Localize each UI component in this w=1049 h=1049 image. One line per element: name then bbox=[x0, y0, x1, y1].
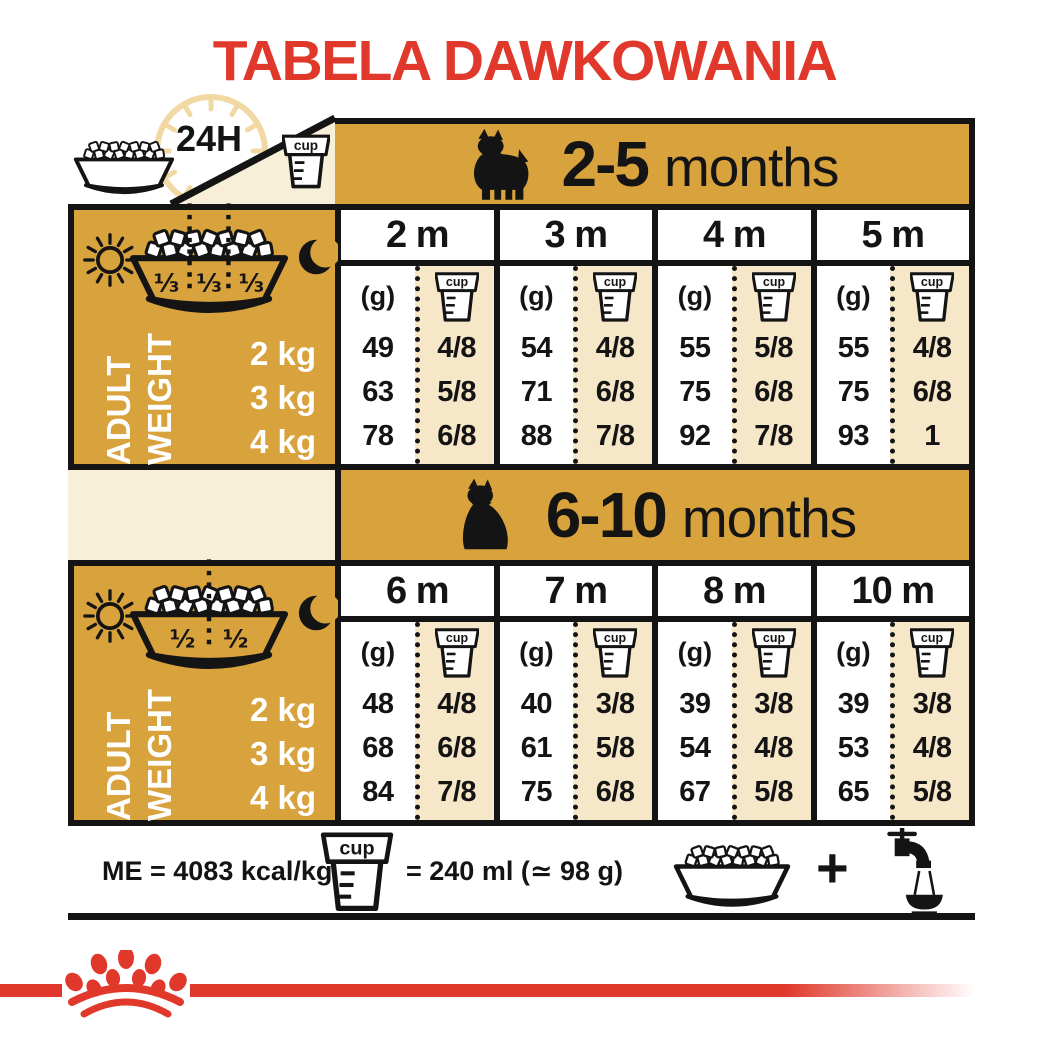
svg-text:cup: cup bbox=[339, 838, 374, 860]
cups-value: 4/8 bbox=[737, 726, 811, 770]
svg-text:cup: cup bbox=[446, 275, 469, 289]
svg-text:cup: cup bbox=[921, 275, 944, 289]
cups-value: 6/8 bbox=[420, 414, 494, 458]
svg-text:cup: cup bbox=[763, 631, 786, 645]
measuring-cup-icon: cup bbox=[752, 270, 796, 323]
cups-value: 7/8 bbox=[578, 414, 652, 458]
cups-value: 3/8 bbox=[737, 682, 811, 726]
cups-value: 6/8 bbox=[578, 370, 652, 414]
cups-value: 6/8 bbox=[578, 770, 652, 814]
plus-sign: + bbox=[816, 828, 849, 908]
grams-value: 40 bbox=[500, 682, 574, 726]
spacer-block bbox=[68, 470, 335, 560]
brand-band-right bbox=[190, 984, 975, 997]
grams-value: 63 bbox=[341, 370, 415, 414]
grams-value: 54 bbox=[500, 326, 574, 370]
cups-value: 1 bbox=[895, 414, 969, 458]
cups-value: 6/8 bbox=[895, 370, 969, 414]
grams-value: 54 bbox=[658, 726, 732, 770]
grams-value: 93 bbox=[817, 414, 891, 458]
month-column-6m: 6 m (g) 48 68 84 cup 4/8 6/8 7/8 bbox=[335, 566, 494, 820]
grams-value: 71 bbox=[500, 370, 574, 414]
month-column-3m: 3 m (g) 54 71 88 cup 4/8 6/8 7/8 bbox=[494, 210, 653, 464]
cups-value: 7/8 bbox=[737, 414, 811, 458]
weight-label: 4 kg bbox=[250, 420, 316, 464]
feeding-table-2-5: ⅓ ⅓ ⅓ ADULTWEIGHT 2 kg 3 kg 4 kg 2 m (g)… bbox=[68, 204, 975, 470]
cup-equivalence-text: = 240 ml (≃ 98 g) bbox=[406, 828, 623, 914]
age-range-unit: months bbox=[664, 135, 838, 199]
month-column-7m: 7 m (g) 40 61 75 cup 3/8 5/8 6/8 bbox=[494, 566, 653, 820]
grams-value: 49 bbox=[341, 326, 415, 370]
left-panel: ⅓ ⅓ ⅓ ADULTWEIGHT 2 kg 3 kg 4 kg bbox=[74, 210, 335, 464]
grams-value: 53 bbox=[817, 726, 891, 770]
age-range-title: 2-5months bbox=[561, 127, 838, 201]
svg-text:cup: cup bbox=[763, 275, 786, 289]
grams-value: 48 bbox=[341, 682, 415, 726]
measuring-cup-icon: cup bbox=[910, 270, 954, 323]
month-column-4m: 4 m (g) 55 75 92 cup 5/8 6/8 7/8 bbox=[652, 210, 811, 464]
cups-value: 4/8 bbox=[578, 326, 652, 370]
svg-text:⅓: ⅓ bbox=[154, 269, 180, 298]
adult-weight-label: ADULTWEIGHT bbox=[98, 295, 182, 465]
svg-text:½: ½ bbox=[170, 625, 196, 654]
month-column-5m: 5 m (g) 55 75 93 cup 4/8 6/8 1 bbox=[811, 210, 970, 464]
month-header: 8 m bbox=[658, 566, 811, 622]
royal-canin-crown-icon bbox=[60, 950, 192, 1022]
grams-unit: (g) bbox=[817, 622, 891, 682]
brand-band-left bbox=[0, 984, 62, 997]
weight-label: 4 kg bbox=[250, 776, 316, 820]
measuring-cup-icon: cup bbox=[910, 626, 954, 679]
grams-unit: (g) bbox=[341, 266, 415, 326]
age-range-unit: months bbox=[682, 486, 856, 550]
grams-unit: (g) bbox=[500, 622, 574, 682]
age-range-title: 6-10months bbox=[546, 478, 856, 552]
left-panel: ½ ½ ADULTWEIGHT 2 kg 3 kg 4 kg bbox=[74, 566, 335, 820]
measuring-cup-icon: cup bbox=[282, 132, 330, 190]
weight-label: 2 kg bbox=[250, 688, 316, 732]
measuring-cup-icon: cup bbox=[593, 626, 637, 679]
weight-label: 3 kg bbox=[250, 732, 316, 776]
cups-value: 5/8 bbox=[578, 726, 652, 770]
grams-value: 88 bbox=[500, 414, 574, 458]
grams-value: 39 bbox=[658, 682, 732, 726]
svg-text:cup: cup bbox=[604, 631, 627, 645]
grams-unit: (g) bbox=[500, 266, 574, 326]
moon-icon bbox=[298, 234, 338, 280]
feeding-table-6-10: ½ ½ ADULTWEIGHT 2 kg 3 kg 4 kg 6 m (g) 4… bbox=[68, 560, 975, 826]
svg-text:⅓: ⅓ bbox=[196, 269, 222, 298]
cups-value: 3/8 bbox=[578, 682, 652, 726]
grams-value: 65 bbox=[817, 770, 891, 814]
month-header: 10 m bbox=[817, 566, 970, 622]
month-column-2m: 2 m (g) 49 63 78 cup 4/8 5/8 6/8 bbox=[335, 210, 494, 464]
cups-value: 6/8 bbox=[737, 370, 811, 414]
weight-label: 3 kg bbox=[250, 376, 316, 420]
month-header: 4 m bbox=[658, 210, 811, 266]
month-header: 6 m bbox=[341, 566, 494, 622]
grams-unit: (g) bbox=[341, 622, 415, 682]
grams-value: 67 bbox=[658, 770, 732, 814]
cups-value: 4/8 bbox=[895, 726, 969, 770]
cups-value: 5/8 bbox=[737, 770, 811, 814]
svg-text:cup: cup bbox=[921, 631, 944, 645]
moon-icon bbox=[298, 590, 338, 636]
svg-text:cup: cup bbox=[446, 631, 469, 645]
footer-rule bbox=[68, 913, 975, 920]
cups-value: 4/8 bbox=[420, 682, 494, 726]
weight-rows: 2 kg 3 kg 4 kg bbox=[250, 332, 316, 464]
grams-unit: (g) bbox=[658, 266, 732, 326]
svg-text:cup: cup bbox=[604, 275, 627, 289]
grams-value: 84 bbox=[341, 770, 415, 814]
food-bowl-icon bbox=[68, 124, 180, 206]
measuring-cup-icon: cup bbox=[435, 626, 479, 679]
weight-rows: 2 kg 3 kg 4 kg bbox=[250, 688, 316, 820]
footer-legend: ME = 4083 kcal/kg cup = 240 ml (≃ 98 g) … bbox=[68, 828, 975, 914]
month-column-8m: 8 m (g) 39 54 67 cup 3/8 4/8 5/8 bbox=[652, 566, 811, 820]
svg-text:½: ½ bbox=[223, 625, 249, 654]
age-band-6-10-months: 6-10months bbox=[335, 470, 975, 560]
junior-dog-silhouette-icon bbox=[454, 478, 518, 552]
cups-value: 4/8 bbox=[420, 326, 494, 370]
grams-value: 75 bbox=[817, 370, 891, 414]
age-range-number: 2-5 bbox=[561, 127, 648, 201]
cups-value: 5/8 bbox=[737, 326, 811, 370]
puppy-silhouette-icon bbox=[466, 127, 534, 201]
cups-value: 3/8 bbox=[895, 682, 969, 726]
month-header: 7 m bbox=[500, 566, 653, 622]
grams-value: 55 bbox=[658, 326, 732, 370]
me-kcal-text: ME = 4083 kcal/kg bbox=[102, 828, 332, 914]
measuring-cup-icon: cup bbox=[435, 270, 479, 323]
food-bowl-icon bbox=[656, 834, 808, 912]
grams-unit: (g) bbox=[817, 266, 891, 326]
cups-value: 5/8 bbox=[420, 370, 494, 414]
month-header: 3 m bbox=[500, 210, 653, 266]
cups-value: 5/8 bbox=[895, 770, 969, 814]
grams-value: 78 bbox=[341, 414, 415, 458]
water-tap-icon bbox=[864, 828, 958, 914]
svg-text:⅓: ⅓ bbox=[239, 269, 265, 298]
cups-value: 6/8 bbox=[420, 726, 494, 770]
weight-label: 2 kg bbox=[250, 332, 316, 376]
svg-text:cup: cup bbox=[294, 138, 318, 153]
measuring-cup-icon: cup bbox=[320, 829, 394, 913]
adult-weight-label: ADULTWEIGHT bbox=[98, 651, 182, 821]
grams-unit: (g) bbox=[658, 622, 732, 682]
grams-value: 75 bbox=[658, 370, 732, 414]
measuring-cup-icon: cup bbox=[593, 270, 637, 323]
month-header: 2 m bbox=[341, 210, 494, 266]
month-header: 5 m bbox=[817, 210, 970, 266]
page: TABELA DAWKOWANIA 24H cup 2 bbox=[0, 0, 1049, 1049]
age-band-2-5-months: 2-5months bbox=[335, 118, 975, 204]
grams-value: 39 bbox=[817, 682, 891, 726]
grams-value: 68 bbox=[341, 726, 415, 770]
month-column-10m: 10 m (g) 39 53 65 cup 3/8 4/8 5/8 bbox=[811, 566, 970, 820]
cups-value: 7/8 bbox=[420, 770, 494, 814]
grams-value: 92 bbox=[658, 414, 732, 458]
grams-value: 75 bbox=[500, 770, 574, 814]
grams-value: 61 bbox=[500, 726, 574, 770]
measuring-cup-icon: cup bbox=[752, 626, 796, 679]
grams-value: 55 bbox=[817, 326, 891, 370]
page-title: TABELA DAWKOWANIA bbox=[0, 28, 1049, 94]
cups-value: 4/8 bbox=[895, 326, 969, 370]
age-range-number: 6-10 bbox=[546, 478, 666, 552]
